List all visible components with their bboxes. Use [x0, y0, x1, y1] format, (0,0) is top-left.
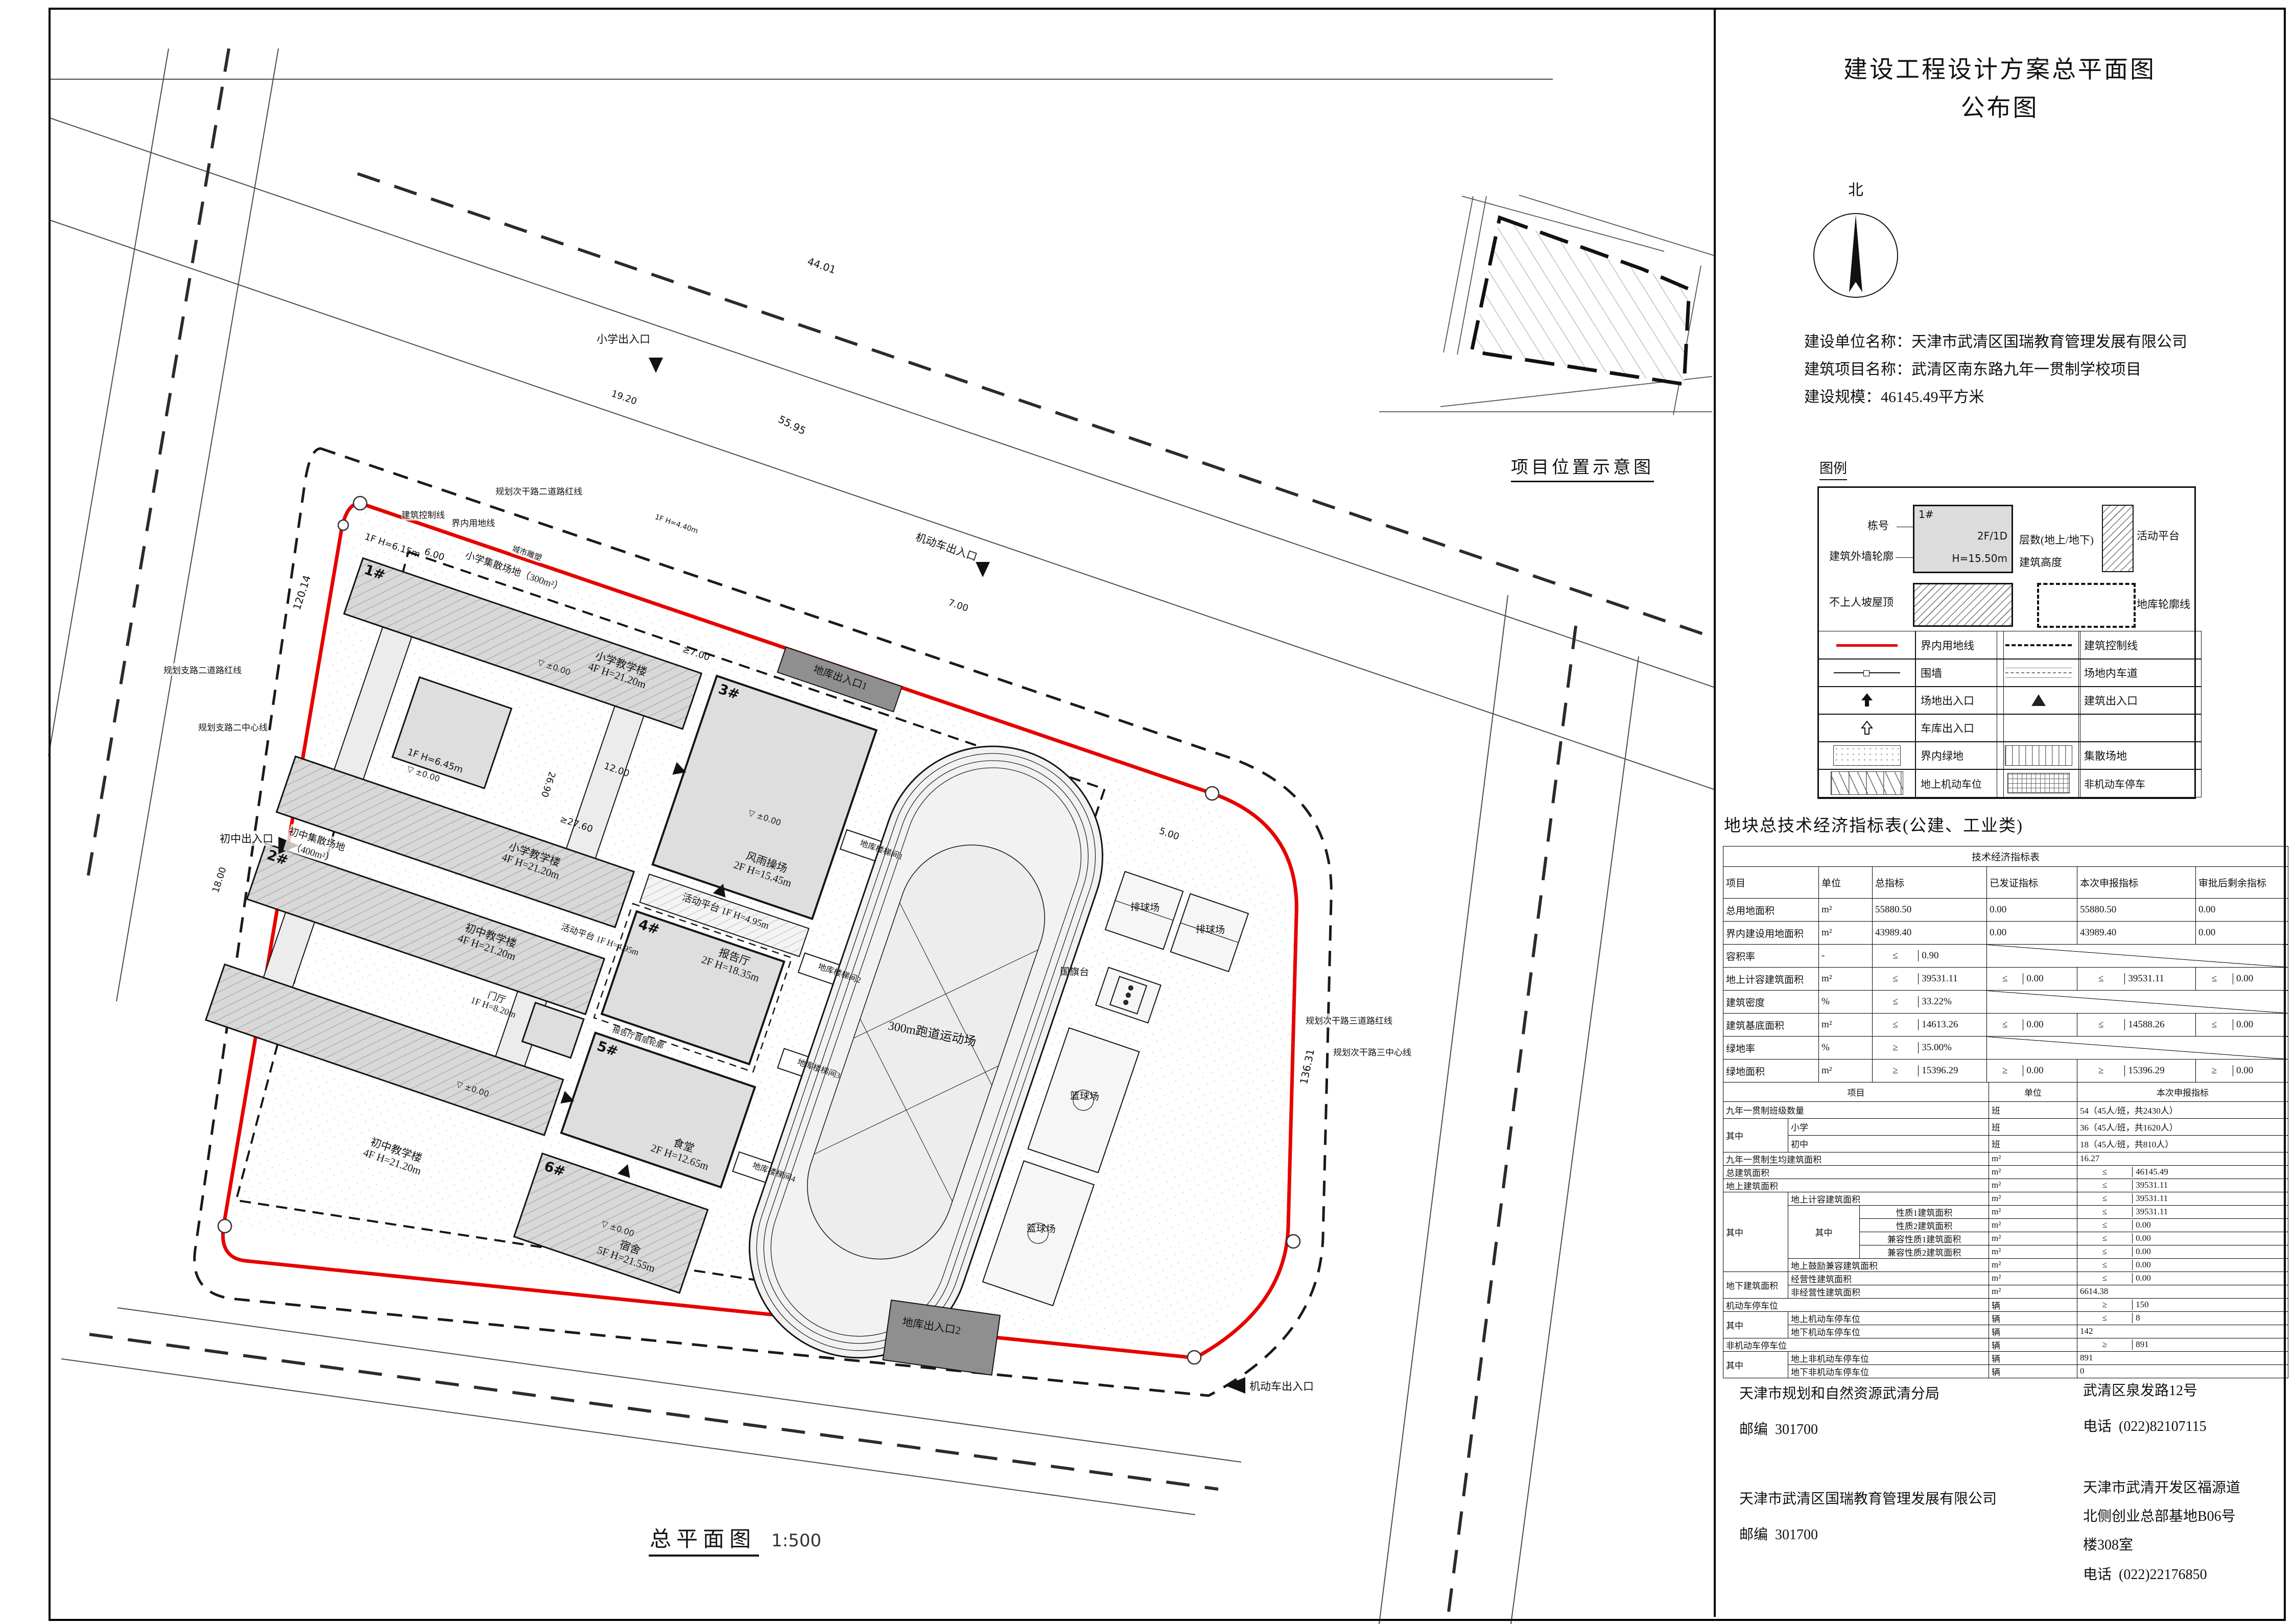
legend-row-label	[2078, 714, 2202, 742]
legend-row-label: 地上机动车位	[1915, 769, 2004, 797]
legend-row-label: 车库出入口	[1915, 714, 2004, 742]
table-row: 其中 小学班36（45人/班，共1620人）	[1723, 1118, 2288, 1135]
table-row: 其中 地上非机动车停车位辆891	[1723, 1351, 2288, 1364]
legend-title: 图例	[1819, 461, 1847, 480]
slash-cell	[1987, 1037, 2288, 1060]
legend-dong-label: 栋号	[1867, 520, 1889, 532]
col-header: 已发证指标	[1987, 867, 2077, 899]
econ-table-title: 地块总技术经济指标表(公建、工业类)	[1724, 816, 2023, 836]
legend-platform-label: 活动平台	[2137, 530, 2180, 543]
table-row: 地上鼓励兼容建筑面积m² ≤0.00	[1723, 1258, 2288, 1272]
legend-roof-swatch	[1913, 583, 2013, 627]
garage-entrance-arrow-icon	[1860, 721, 1874, 735]
parking-swatch	[1831, 771, 1903, 795]
table-row: 地上计容建筑面积m² ≤39531.11 ≤0.00 ≤39531.11 ≤0.…	[1723, 968, 2288, 991]
owner-phone: 电话 (022)22176850	[2083, 1566, 2207, 1583]
legend-height-label: 建筑高度	[2019, 556, 2062, 569]
building-entrance-arrow-icon	[2031, 694, 2046, 707]
legend-row-label: 界内绿地	[1915, 741, 2004, 770]
sheet-title-line1: 建设工程设计方案总平面图	[1737, 56, 2263, 84]
driveway-swatch	[2005, 668, 2072, 678]
table-row: 九年一贯制生均建筑面积m²16.27	[1723, 1152, 2288, 1165]
legend-wall-label: 建筑外墙轮廓	[1829, 550, 1894, 563]
col-header: 总指标	[1873, 867, 1987, 899]
table-row: 地下非机动车停车位辆0	[1723, 1364, 2288, 1378]
table-row: 地上建筑面积m² ≤39531.11	[1723, 1179, 2288, 1192]
scale-line: 建设规模：46145.49平方米	[1804, 388, 1984, 406]
table-row: 其中 地上计容建筑面积m² ≤39531.11	[1723, 1192, 2288, 1205]
project-name-line: 建筑项目名称：武清区南东路九年一贯制学校项目	[1804, 361, 2141, 379]
table-row: 地下建筑面积 经营性建筑面积m² ≤0.00	[1723, 1272, 2288, 1285]
greenspace-swatch	[1833, 745, 1901, 766]
gathering-swatch	[2005, 745, 2072, 766]
slash-cell	[1987, 991, 2288, 1014]
authority-address: 武清区泉发路12号	[2083, 1382, 2197, 1399]
legend-row-label: 界内用地线	[1915, 631, 2004, 660]
owner-name: 天津市武清区国瑞教育管理发展有限公司	[1739, 1491, 1997, 1508]
legend-row-label: 建筑出入口	[2078, 686, 2202, 715]
table-row: 绿地率% ≥35.00%	[1723, 1037, 2288, 1060]
fence-swatch	[1834, 670, 1900, 675]
sheet-title-line2: 公布图	[1737, 95, 2263, 123]
table-row: 界内建设用地面积m² 43989.400.00 43989.400.00	[1723, 922, 2288, 945]
legend-building-sample: 1# 2F/1D H=15.50m	[1913, 505, 2013, 573]
owner-address-3: 楼308室	[2083, 1537, 2133, 1554]
table-row: 总建筑面积m² ≤46145.49	[1723, 1165, 2288, 1179]
controlline-swatch	[2005, 644, 2072, 646]
authority-phone: 电话 (022)82107115	[2083, 1418, 2207, 1435]
legend-row-label: 场地出入口	[1915, 686, 2004, 715]
drawing-sheet: 1F H=6.15m 1# 小学教学楼4F H=21.20m 1F H=6.45…	[0, 0, 2295, 1624]
redline-swatch	[1836, 644, 1898, 647]
table-row: 总用地面积m² 55880.500.00 55880.500.00	[1723, 899, 2288, 922]
owner-zip: 邮编 301700	[1739, 1526, 1818, 1543]
north-compass: 北	[1800, 179, 1912, 312]
north-label: 北	[1848, 182, 1863, 199]
table-row: 机动车停车位辆 ≥150	[1723, 1298, 2288, 1311]
owner-address-1: 天津市武清开发区福源道	[2083, 1479, 2240, 1496]
site-entrance-arrow-icon	[1860, 693, 1874, 708]
authority-zip: 邮编 301700	[1739, 1421, 1818, 1438]
sheet-border	[49, 8, 2286, 1621]
table-row: 其中 性质1建筑面积m² ≤39531.11	[1723, 1205, 2288, 1218]
owner-address-2: 北侧创业总部基地B06号	[2083, 1508, 2236, 1525]
col-header: 项目	[1723, 1082, 1989, 1101]
compass-needle-icon	[1849, 215, 1862, 292]
legend-row-label: 场地内车道	[2078, 658, 2202, 687]
table-row: 九年一贯制班级数量班54（45人/班，共2430人）	[1723, 1101, 2288, 1118]
slash-cell	[1987, 945, 2288, 968]
table-row: 地下机动车停车位辆142	[1723, 1325, 2288, 1338]
col-header: 单位	[1989, 1082, 2077, 1101]
owner-name-line: 建设单位名称：天津市武清区国瑞教育管理发展有限公司	[1804, 333, 2187, 351]
econ-table-upper: 技术经济指标表 项目 单位 总指标 已发证指标 本次申报指标 审批后剩余指标 总…	[1723, 846, 2288, 1082]
panel-divider	[1714, 8, 1716, 1617]
col-header: 单位	[1819, 867, 1873, 899]
legend-floors-label: 层数(地上/地下)	[2019, 534, 2094, 547]
authority-name: 天津市规划和自然资源武清分局	[1739, 1385, 1939, 1402]
table-row: 其中 地上机动车停车位辆 ≤8	[1723, 1311, 2288, 1325]
table-row: 非机动车停车位辆 ≥891	[1723, 1338, 2288, 1351]
col-header: 项目	[1723, 867, 1819, 899]
col-header: 本次申报指标	[2077, 867, 2196, 899]
legend-floors-value: 2F/1D	[1977, 530, 2007, 542]
col-header: 审批后剩余指标	[2196, 867, 2288, 899]
table-row: 绿地面积m² ≥15396.29 ≥0.00 ≥15396.29 ≥0.00	[1723, 1060, 2288, 1082]
legend-roof-label: 不上人坡屋顶	[1829, 596, 1894, 609]
legend-row-label: 建筑控制线	[2078, 631, 2202, 660]
legend-platform-swatch	[2102, 505, 2134, 572]
econ-table-lower: 项目 单位 本次申报指标 九年一贯制班级数量班54（45人/班，共2430人） …	[1723, 1082, 2288, 1378]
col-header: 本次申报指标	[2077, 1082, 2288, 1101]
legend-garage-swatch	[2037, 583, 2136, 628]
table-row: 非经营性建筑面积m²6614.38	[1723, 1285, 2288, 1298]
table-row: 容积率- ≤0.90	[1723, 945, 2288, 968]
legend-box: 1# 2F/1D H=15.50m 栋号 建筑外墙轮廓 层数(地上/地下) 建筑…	[1817, 486, 2196, 799]
table-row: 初中班18（45人/班，共810人）	[1723, 1135, 2288, 1152]
econ-table-1: 技术经济指标表 项目 单位 总指标 已发证指标 本次申报指标 审批后剩余指标 总…	[1723, 846, 2288, 1378]
legend-garage-label: 地库轮廓线	[2137, 598, 2190, 611]
legend-height-value: H=15.50m	[1952, 552, 2007, 564]
table-row: 建筑密度% ≤33.22%	[1723, 991, 2288, 1014]
legend-row-label: 集散场地	[2078, 741, 2202, 770]
legend-row-label: 非机动车停车	[2078, 769, 2202, 797]
legend-building-number: 1#	[1919, 508, 1933, 521]
table-caption: 技术经济指标表	[1723, 846, 2288, 867]
legend-row-label: 围墙	[1915, 658, 2004, 687]
bicycle-parking-swatch	[2007, 773, 2070, 793]
table-row: 建筑基底面积m² ≤14613.26 ≤0.00 ≤14588.26 ≤0.00	[1723, 1014, 2288, 1037]
